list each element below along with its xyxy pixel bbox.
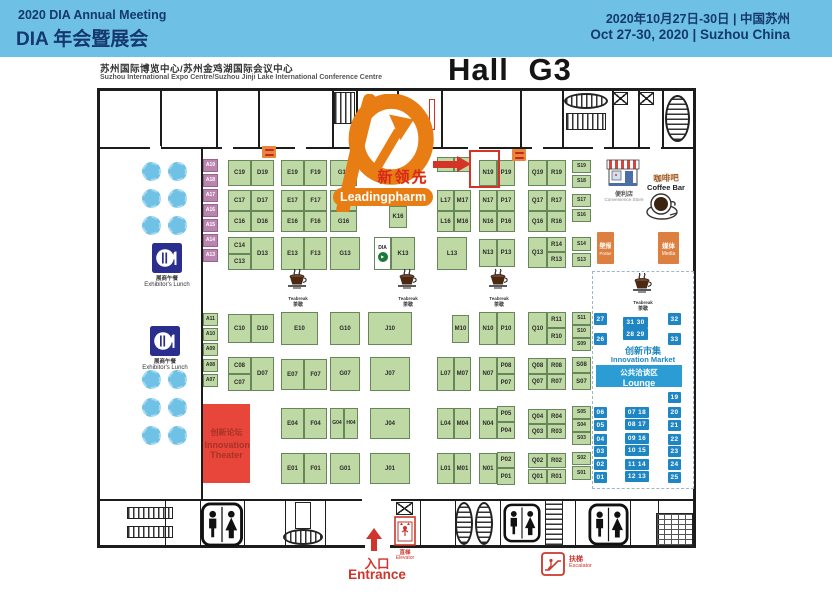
escalator-oval-icon (475, 502, 493, 545)
booth-d19[interactable]: D19 (251, 160, 274, 186)
booth-r11[interactable]: R11 (547, 312, 566, 328)
hatched-area (656, 513, 693, 546)
restroom-icon (200, 502, 244, 547)
escalator-oval-icon (455, 502, 473, 545)
booth-r14[interactable]: R14 (547, 237, 566, 252)
market-stall-20[interactable]: 20 (668, 407, 681, 418)
booth-e01[interactable]: E01 (281, 453, 304, 484)
escalator-label-en: Escalator (569, 563, 592, 569)
innovation-market-label-en: Innovation Market (594, 355, 692, 364)
booth-e07[interactable]: E07 (281, 359, 304, 390)
wall (325, 501, 326, 545)
media-label-en: Media (662, 251, 676, 257)
booth-f17[interactable]: F17 (304, 190, 327, 211)
event-title-cn: DIA 年会暨展会 (16, 24, 148, 51)
booth-f16[interactable]: F16 (304, 211, 327, 232)
wall (97, 88, 695, 91)
booth-q01[interactable]: Q01 (528, 469, 547, 484)
wall (390, 545, 696, 548)
booth-m07[interactable]: M07 (454, 357, 471, 391)
event-date-cn: 2020年10月27日-30日 | 中国苏州 (606, 8, 790, 27)
exhibitor-lunch-label: 展商午餐Exhibitor's Lunch (127, 357, 203, 371)
poster-label-en: Poster (599, 251, 611, 256)
booth-r16[interactable]: R16 (547, 211, 566, 232)
booth-r04[interactable]: R04 (547, 409, 566, 424)
teabreak-station: Teabreak茶歇 (626, 272, 660, 312)
event-date-en: Oct 27-30, 2020 | Suzhou China (590, 27, 790, 42)
booth-p16[interactable]: P16 (497, 211, 515, 232)
booth-q04[interactable]: Q04 (528, 409, 547, 424)
entrance-arrow-bar (371, 539, 377, 551)
service-room (295, 502, 311, 529)
entrance-label-en: Entrance (340, 567, 414, 582)
booth-d07[interactable]: D07 (251, 357, 274, 391)
booth-f13[interactable]: F13 (304, 237, 327, 270)
booth-a15[interactable]: A15 (203, 219, 218, 232)
round-table (142, 426, 161, 445)
booth-s19[interactable]: S19 (572, 160, 591, 173)
booth-a10[interactable]: A10 (203, 328, 218, 341)
booth-a14[interactable]: A14 (203, 234, 218, 247)
poster-desk[interactable]: 壁报 Poster (597, 232, 614, 264)
door-gap (362, 497, 391, 503)
booth-l01[interactable]: L01 (437, 453, 454, 484)
wall (630, 501, 631, 545)
booth-s14[interactable]: S14 (572, 237, 591, 251)
booth-p08[interactable]: P08 (497, 357, 515, 374)
exhibitor-lunch-icon (150, 326, 180, 356)
brand-name-cn: 新领先 (370, 166, 436, 187)
teabreak-station: Teabreak茶歇 (281, 268, 315, 308)
round-table (168, 162, 187, 181)
booth-d13[interactable]: D13 (251, 237, 274, 270)
booth-s07[interactable]: S07 (572, 373, 591, 390)
wall (160, 90, 162, 148)
market-stall-11-14[interactable]: 11 14 (625, 459, 649, 470)
booth-k13[interactable]: K13 (391, 237, 415, 270)
poster-label-cn: 壁报 (599, 241, 611, 250)
booth-p04[interactable]: P04 (497, 422, 515, 439)
booth-q08[interactable]: Q08 (528, 358, 547, 374)
booth-q19[interactable]: Q19 (528, 160, 547, 186)
booth-s10[interactable]: S10 (572, 325, 591, 338)
booth-e10[interactable]: E10 (281, 312, 318, 345)
market-stall-27[interactable]: 27 (594, 313, 607, 325)
booth-n13[interactable]: N13 (479, 239, 497, 267)
header: 2020 DIA Annual Meeting DIA 年会暨展会 2020年1… (0, 0, 832, 57)
booth-f07[interactable]: F07 (304, 359, 327, 390)
round-table (142, 370, 161, 389)
booth-a13[interactable]: A13 (203, 249, 218, 262)
teabreak-station: Teabreak茶歇 (391, 268, 425, 308)
booth-j01[interactable]: J01 (370, 453, 410, 484)
market-stall-25[interactable]: 25 (668, 472, 681, 483)
teabreak-label-cn: 茶歇 (391, 301, 425, 308)
booth-s03[interactable]: S03 (572, 432, 591, 445)
wall (97, 88, 100, 548)
market-stall-26[interactable]: 26 (594, 333, 607, 345)
booth-e13[interactable]: E13 (281, 237, 304, 270)
lounge-label-cn: 公共洽谈区 (596, 367, 682, 378)
exhibitor-lunch-label: 展商午餐Exhibitor's Lunch (129, 274, 205, 288)
highlight-box-n19 (469, 150, 500, 188)
booth-l07[interactable]: L07 (437, 357, 454, 391)
booth-s17[interactable]: S17 (572, 194, 591, 207)
booth-a18[interactable]: A18 (203, 174, 218, 187)
exhibitor-lunch-icon (152, 243, 182, 273)
brand-name-en: Leadingpharm (333, 188, 433, 206)
market-stall-04[interactable]: 04 (594, 434, 607, 445)
booth-a11[interactable]: A11 (203, 313, 218, 326)
restroom-icon (588, 502, 629, 547)
elevator-shaft-icon (639, 92, 654, 105)
booth-a17[interactable]: A17 (203, 189, 218, 202)
market-stall-21[interactable]: 21 (668, 420, 681, 431)
booth-j10[interactable]: J10 (368, 312, 412, 345)
round-table (168, 216, 187, 235)
media-label-cn: 媒体 (662, 240, 675, 250)
entrance-arrow-icon (366, 528, 382, 539)
round-table (168, 426, 187, 445)
booth-c14[interactable]: C14 (228, 237, 251, 254)
market-stall-32[interactable]: 32 (668, 313, 681, 325)
elevator-label-en: Elevator (390, 555, 420, 561)
booth-dia[interactable]: DIA▶ (374, 237, 391, 270)
wall (216, 90, 218, 148)
market-stall-23[interactable]: 23 (668, 446, 681, 457)
booth-c08[interactable]: C08 (228, 357, 251, 374)
escalator-oval-icon (665, 95, 690, 142)
booth-c17[interactable]: C17 (228, 190, 251, 211)
market-stall-33[interactable]: 33 (668, 333, 681, 345)
booth-g04[interactable]: G04 (330, 408, 344, 439)
door-gap (650, 146, 661, 150)
booth-s18[interactable]: S18 (572, 175, 591, 188)
round-table (142, 216, 161, 235)
dia-logo-text: DIA (378, 246, 387, 251)
escalator-oval-icon (283, 529, 323, 545)
restroom-icon (503, 501, 541, 545)
booth-n17[interactable]: N17 (479, 190, 497, 211)
booth-r10[interactable]: R10 (547, 328, 566, 345)
booth-e04[interactable]: E04 (281, 408, 304, 439)
round-table (142, 189, 161, 208)
market-stall-12-13[interactable]: 12 13 (625, 471, 649, 482)
booth-l17[interactable]: L17 (437, 190, 454, 211)
theater-label-cn: 创新论坛 (211, 427, 243, 438)
booth-n04[interactable]: N04 (479, 408, 497, 439)
door-gap (295, 146, 306, 150)
booth-p07[interactable]: P07 (497, 374, 515, 391)
venue-name-cn: 苏州国际博览中心/苏州金鸡湖国际会议中心 (100, 61, 293, 75)
booth-s02[interactable]: S02 (572, 452, 591, 465)
teabreak-label-cn: 茶歇 (281, 301, 315, 308)
booth-p13[interactable]: P13 (497, 239, 515, 267)
booth-a19[interactable]: A19 (203, 159, 218, 172)
booth-f04[interactable]: F04 (304, 408, 327, 439)
wall (420, 501, 421, 545)
booth-c13[interactable]: C13 (228, 254, 251, 270)
booth-a16[interactable]: A16 (203, 204, 218, 217)
market-stall-28-29[interactable]: 28 29 (623, 328, 648, 340)
booth-s11[interactable]: S11 (572, 312, 591, 325)
teabreak-station: Teabreak茶歇 (482, 268, 516, 308)
booth-r13[interactable]: R13 (547, 252, 566, 268)
booth-j07[interactable]: J07 (370, 357, 410, 391)
booth-s05[interactable]: S05 (572, 406, 591, 419)
elevator-shaft-icon (613, 92, 628, 105)
booth-p05[interactable]: P05 (497, 406, 515, 422)
market-stall-31-30[interactable]: 31 30 (623, 317, 648, 328)
booth-s08[interactable]: S08 (572, 357, 591, 373)
booth-m17[interactable]: M17 (454, 190, 471, 211)
door-gap (593, 146, 604, 150)
wall (662, 90, 664, 148)
booth-r01[interactable]: R01 (547, 469, 566, 484)
door-gap (532, 146, 543, 150)
booth-r17[interactable]: R17 (547, 190, 566, 211)
booth-d17[interactable]: D17 (251, 190, 274, 211)
market-stall-19[interactable]: 19 (668, 392, 681, 403)
escalator-icon (541, 552, 565, 581)
booth-m10[interactable]: M10 (452, 315, 469, 343)
booth-e19[interactable]: E19 (281, 160, 304, 186)
wall (575, 501, 576, 545)
booth-r03[interactable]: R03 (547, 424, 566, 439)
round-table (142, 162, 161, 181)
booth-p10[interactable]: P10 (497, 312, 515, 345)
wall (258, 90, 260, 148)
wall (520, 90, 522, 148)
booth-a07[interactable]: A07 (203, 374, 218, 387)
wall (562, 90, 564, 148)
booth-m04[interactable]: M04 (454, 408, 471, 439)
market-stall-10-15[interactable]: 10 15 (625, 445, 649, 456)
event-title-en: 2020 DIA Annual Meeting (18, 8, 166, 22)
wall (500, 501, 501, 545)
teabreak-label-cn: 茶歇 (482, 301, 516, 308)
escalator-oval-icon (564, 93, 608, 109)
booth-r02[interactable]: R02 (547, 453, 566, 468)
booth-a08[interactable]: A08 (203, 359, 218, 372)
booth-e16[interactable]: E16 (281, 211, 304, 232)
dia-logo-icon: ▶ (378, 252, 388, 262)
market-stall-05[interactable]: 05 (594, 420, 607, 431)
arrow-to-n19 (433, 161, 457, 168)
venue-name-en: Suzhou International Expo Centre/Suzhou … (100, 74, 382, 81)
booth-g01[interactable]: G01 (330, 453, 360, 484)
teabreak-label-cn: 茶歇 (626, 305, 660, 312)
wall (244, 501, 245, 545)
booth-p02[interactable]: P02 (497, 452, 515, 468)
booth-n01[interactable]: N01 (479, 453, 497, 484)
elevator-icon (394, 516, 416, 551)
booth-n10[interactable]: N10 (479, 312, 497, 345)
market-stall-09-16[interactable]: 09 16 (625, 433, 649, 444)
booth-q02[interactable]: Q02 (528, 453, 547, 468)
hall-title: Hall G3 (448, 52, 572, 88)
booth-l13[interactable]: L13 (437, 237, 467, 270)
round-table (142, 398, 161, 417)
door-gap (150, 146, 161, 150)
media-desk[interactable]: 媒体 Media (658, 232, 679, 264)
booth-c16[interactable]: C16 (228, 211, 251, 232)
market-stall-03[interactable]: 03 (594, 446, 607, 457)
booth-c10[interactable]: C10 (228, 314, 251, 343)
stairs-hatch (127, 526, 173, 538)
booth-h04[interactable]: H04 (344, 408, 358, 439)
coffee-cup-icon (645, 191, 681, 226)
booth-q13[interactable]: Q13 (528, 237, 547, 268)
door-gap (222, 146, 233, 150)
stairs-hatch (127, 507, 173, 519)
booth-f19[interactable]: F19 (304, 160, 327, 186)
booth-l16[interactable]: L16 (437, 211, 454, 232)
market-stall-02[interactable]: 02 (594, 459, 607, 470)
booth-c19[interactable]: C19 (228, 160, 251, 186)
booth-s13[interactable]: S13 (572, 253, 591, 267)
market-stall-08-17[interactable]: 08 17 (625, 419, 649, 430)
booth-q17[interactable]: Q17 (528, 190, 547, 211)
booth-p01[interactable]: P01 (497, 468, 515, 485)
booth-d16[interactable]: D16 (251, 211, 274, 232)
booth-n16[interactable]: N16 (479, 211, 497, 232)
innovation-theater[interactable]: 创新论坛 Innovation Theater (203, 404, 250, 483)
booth-j04[interactable]: J04 (370, 408, 410, 439)
booth-q03[interactable]: Q03 (528, 424, 547, 439)
booth-q07[interactable]: Q07 (528, 374, 547, 390)
booth-g07[interactable]: G07 (330, 357, 360, 391)
theater-label-en: Innovation Theater (205, 440, 249, 461)
booth-r08[interactable]: R08 (547, 358, 566, 374)
booth-s09[interactable]: S09 (572, 338, 591, 351)
round-table (168, 370, 187, 389)
booth-q10[interactable]: Q10 (528, 312, 547, 345)
booth-r07[interactable]: R07 (547, 374, 566, 390)
market-stall-07-18[interactable]: 07 18 (625, 407, 649, 418)
booth-q16[interactable]: Q16 (528, 211, 547, 232)
booth-m16[interactable]: M16 (454, 211, 471, 232)
booth-e17[interactable]: E17 (281, 190, 304, 211)
booth-g13[interactable]: G13 (330, 237, 360, 270)
booth-n07[interactable]: N07 (479, 357, 497, 391)
booth-s16[interactable]: S16 (572, 209, 591, 222)
round-table (168, 189, 187, 208)
booth-s04[interactable]: S04 (572, 419, 591, 432)
booth-s01[interactable]: S01 (572, 466, 591, 480)
market-stall-01[interactable]: 01 (594, 472, 607, 483)
stairs-hatch (566, 113, 606, 130)
elevator-shaft-icon (396, 502, 413, 515)
market-stall-22[interactable]: 22 (668, 434, 681, 445)
page: 2020 DIA Annual Meeting DIA 年会暨展会 2020年1… (0, 0, 832, 593)
wall (99, 499, 693, 501)
booth-p17[interactable]: P17 (497, 190, 515, 211)
booth-a09[interactable]: A09 (203, 343, 218, 356)
market-stall-06[interactable]: 06 (594, 407, 607, 418)
market-stall-24[interactable]: 24 (668, 459, 681, 470)
round-table (168, 398, 187, 417)
booth-r19[interactable]: R19 (547, 160, 566, 186)
wall (441, 90, 443, 148)
lounge-label-en: Lounge (596, 378, 682, 388)
booth-l04[interactable]: L04 (437, 408, 454, 439)
booth-c07[interactable]: C07 (228, 374, 251, 391)
booth-g10[interactable]: G10 (330, 312, 360, 345)
lounge-area[interactable]: 公共洽谈区 Lounge (596, 365, 682, 387)
service-marker (262, 146, 276, 158)
shaft-hatch (545, 500, 563, 546)
booth-m01[interactable]: M01 (454, 453, 471, 484)
booth-d10[interactable]: D10 (251, 314, 274, 343)
service-marker (512, 149, 526, 161)
booth-f01[interactable]: F01 (304, 453, 327, 484)
